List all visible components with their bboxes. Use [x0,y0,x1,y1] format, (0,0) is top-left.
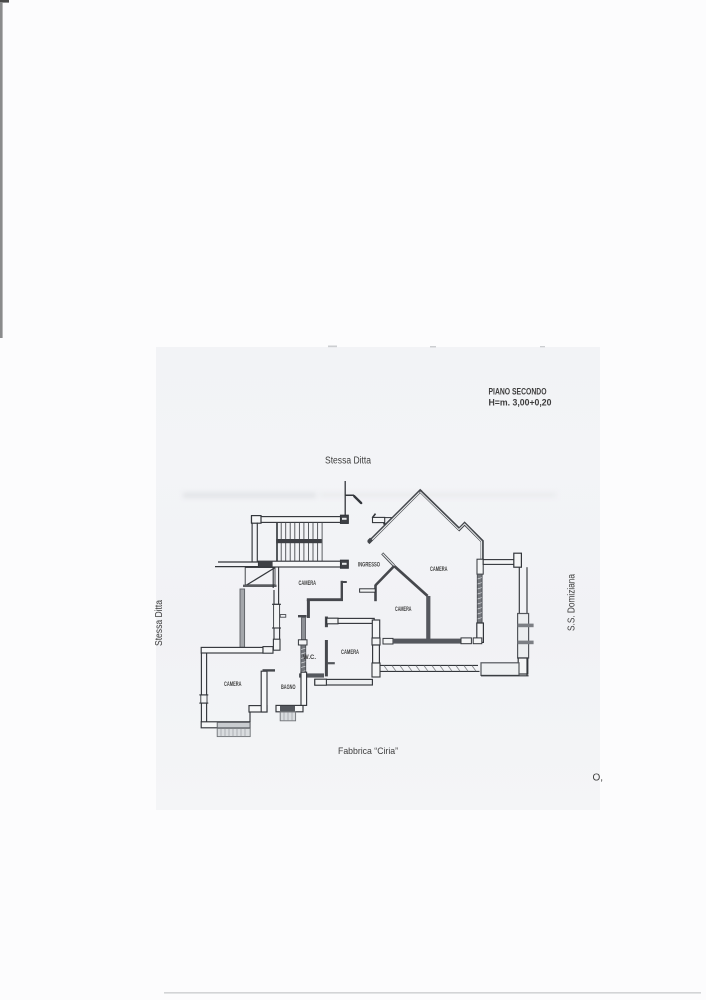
svg-text:INGRESSO: INGRESSO [358,563,380,569]
svg-text:H=m. 3,00+0,20: H=m. 3,00+0,20 [489,398,552,409]
svg-text:W.C.: W.C. [303,655,316,661]
svg-text:CAMERA: CAMERA [299,581,317,587]
svg-text:S.S. Domiziana: S.S. Domiziana [566,574,578,631]
svg-text:PIANO SECONDO: PIANO SECONDO [489,387,547,398]
svg-text:Stessa Ditta: Stessa Ditta [325,456,371,467]
svg-text:CAMERA: CAMERA [395,607,412,613]
svg-text:CAMERA: CAMERA [341,650,359,656]
svg-text:Stessa Ditta: Stessa Ditta [154,600,165,646]
svg-text:BAGNO: BAGNO [281,685,296,691]
svg-text:CAMERA: CAMERA [224,682,242,688]
svg-text:CAMERA: CAMERA [430,567,448,573]
svg-text:Fabbrica “Ciria”: Fabbrica “Ciria” [338,746,398,757]
svg-text:O,: O, [593,773,604,784]
